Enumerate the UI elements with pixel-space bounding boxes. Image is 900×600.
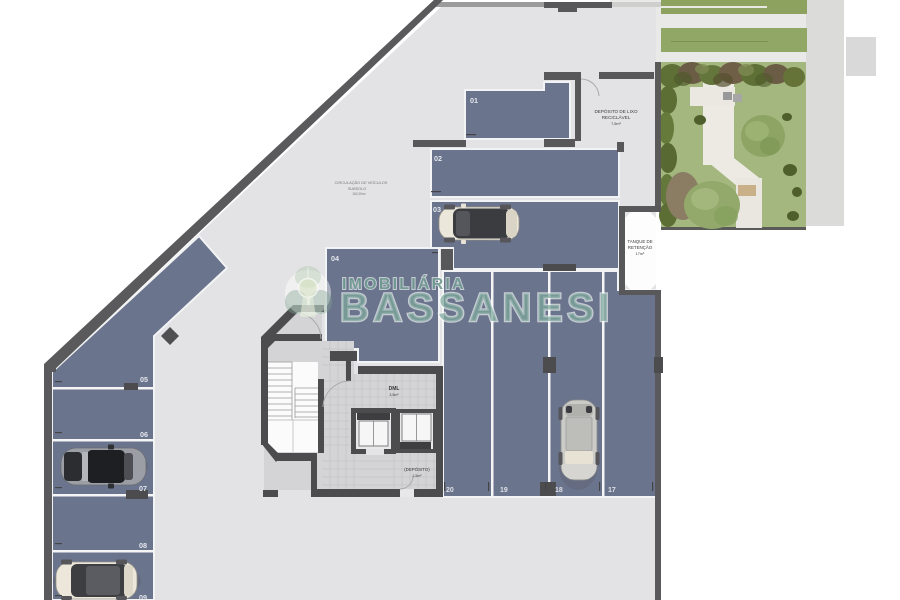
- svg-text:08: 08: [139, 541, 147, 550]
- svg-text:06: 06: [140, 430, 148, 439]
- svg-text:07: 07: [139, 484, 147, 493]
- svg-text:RETENÇÃO: RETENÇÃO: [628, 245, 653, 250]
- svg-text:CIRCULAÇÃO DE VEÍCULOS: CIRCULAÇÃO DE VEÍCULOS: [335, 180, 388, 185]
- svg-text:19: 19: [500, 487, 508, 494]
- svg-text:BASSANESI: BASSANESI: [340, 286, 614, 330]
- svg-text:03: 03: [433, 205, 441, 214]
- svg-text:1,5m²: 1,5m²: [412, 474, 422, 478]
- svg-text:(DEPÓSITO): (DEPÓSITO): [404, 467, 430, 472]
- svg-text:TANQUE DE: TANQUE DE: [627, 239, 652, 244]
- svg-text:17: 17: [608, 487, 616, 494]
- svg-text:01: 01: [470, 96, 478, 105]
- svg-text:162,00m²: 162,00m²: [352, 192, 365, 196]
- svg-text:02: 02: [434, 154, 442, 163]
- svg-text:09: 09: [139, 593, 147, 600]
- svg-text:DEPÓSITO DE LIXO: DEPÓSITO DE LIXO: [594, 108, 637, 114]
- svg-text:SUBSOLO: SUBSOLO: [348, 187, 366, 191]
- svg-text:18: 18: [555, 487, 563, 494]
- svg-text:17m³: 17m³: [636, 252, 645, 256]
- svg-text:3,5m²: 3,5m²: [389, 393, 399, 397]
- svg-text:DML: DML: [389, 386, 400, 392]
- svg-text:20: 20: [446, 487, 454, 494]
- svg-text:04: 04: [331, 254, 339, 263]
- svg-text:RECICLÁVEL: RECICLÁVEL: [602, 114, 631, 120]
- svg-text:7,5m²: 7,5m²: [611, 122, 621, 126]
- svg-text:05: 05: [140, 375, 148, 384]
